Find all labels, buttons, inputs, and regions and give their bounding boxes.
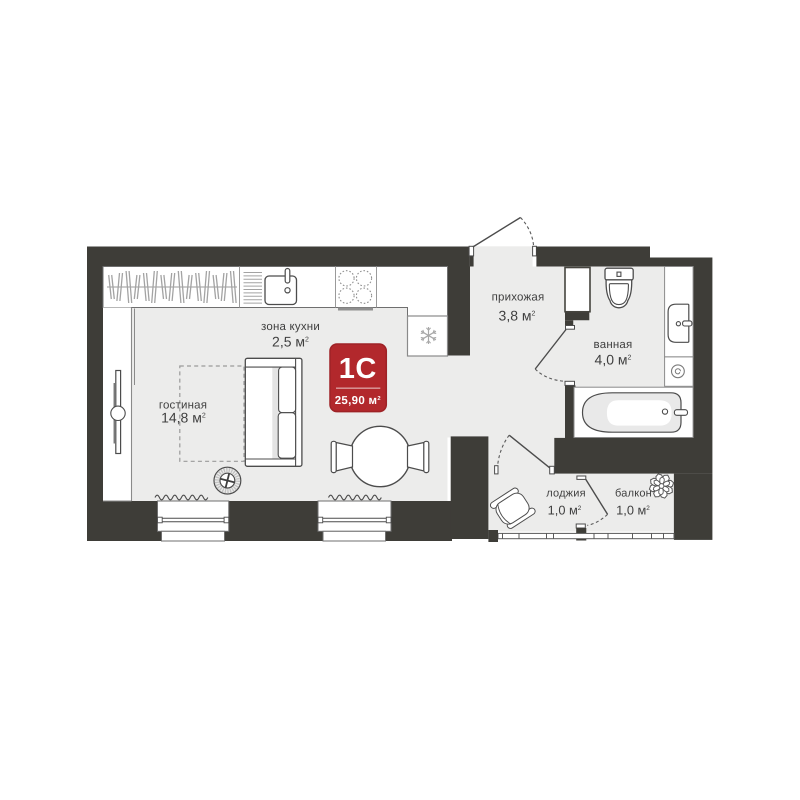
- svg-text:14,8 м2: 14,8 м2: [161, 410, 206, 426]
- svg-text:2,5 м2: 2,5 м2: [272, 333, 309, 349]
- svg-text:4,0 м2: 4,0 м2: [595, 351, 632, 367]
- svg-text:1,0 м2: 1,0 м2: [616, 503, 650, 518]
- svg-text:прихожая: прихожая: [492, 291, 545, 303]
- svg-text:лоджия: лоджия: [546, 488, 586, 500]
- svg-text:ванная: ванная: [594, 339, 633, 351]
- svg-text:1С: 1С: [339, 353, 377, 385]
- svg-text:3,8 м2: 3,8 м2: [499, 307, 536, 323]
- svg-text:25,90 м2: 25,90 м2: [335, 395, 381, 407]
- svg-text:1,0 м2: 1,0 м2: [548, 503, 582, 518]
- svg-text:зона кухни: зона кухни: [261, 321, 320, 333]
- svg-text:балкон: балкон: [615, 488, 652, 500]
